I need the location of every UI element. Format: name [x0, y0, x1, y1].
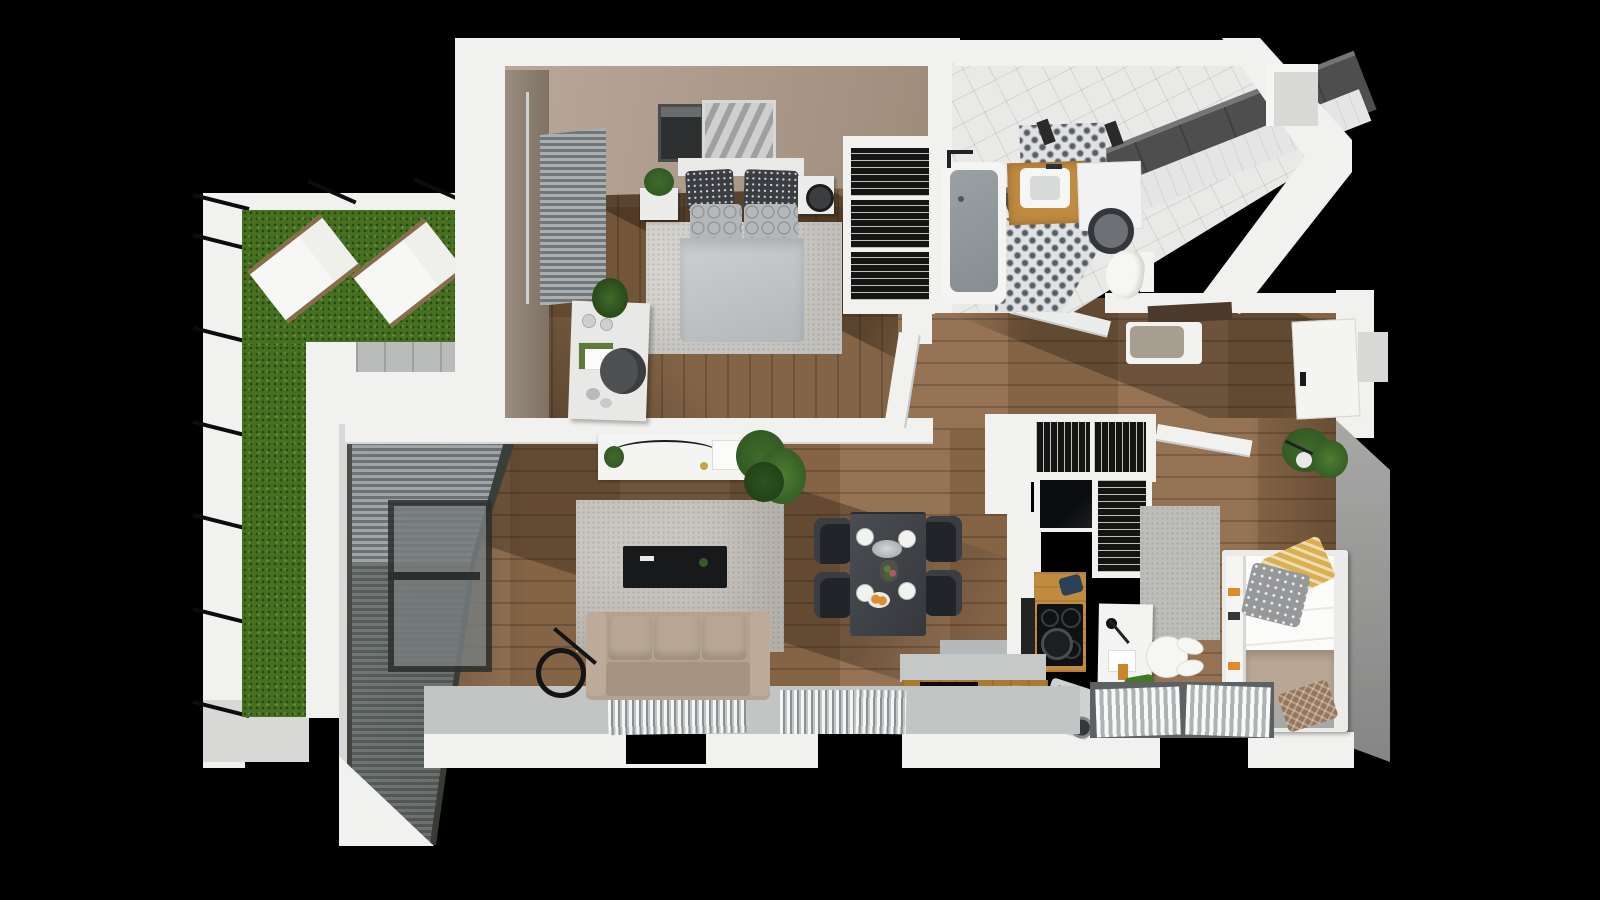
sofa-seat	[606, 662, 750, 696]
terrace-wall-corner	[306, 372, 470, 422]
bedroom-floor-plant	[592, 278, 628, 318]
bed-duvet	[680, 238, 804, 342]
washer-door	[1088, 208, 1134, 254]
desk-chair	[600, 348, 646, 394]
desk-pebble	[586, 388, 600, 400]
shower-fixture-icon	[947, 150, 951, 168]
picture-frame	[658, 104, 704, 162]
kitchen-worktop-gray	[900, 654, 1046, 682]
coat-closet-hangers	[1094, 422, 1146, 472]
coat-closet-hangers	[1036, 422, 1090, 472]
hall-floor	[898, 298, 1343, 430]
closet-left-body	[985, 414, 1031, 514]
kids-window-blinds	[1185, 685, 1271, 738]
window-mullion	[388, 572, 480, 580]
sofa-armrest	[586, 612, 606, 696]
floor-plan-stage	[0, 0, 1600, 900]
entrance-outside-step	[1358, 332, 1388, 382]
book	[1228, 612, 1240, 620]
console-gold-dot	[700, 462, 708, 470]
bedroom-left-outer-wall	[455, 60, 509, 428]
sofa	[586, 612, 770, 700]
burner-icon	[1061, 608, 1081, 628]
terrace-deck-left	[203, 193, 245, 768]
book	[1228, 662, 1240, 670]
flower-vase	[880, 560, 898, 582]
orange-fruit-plate	[868, 592, 890, 608]
console-mini-plant	[604, 446, 624, 468]
tv-decor-plant	[699, 558, 708, 567]
plate	[856, 528, 874, 546]
floor-lamp	[536, 648, 586, 698]
sofa-armrest	[750, 612, 770, 696]
dining-chair	[814, 572, 852, 618]
window-gap	[1160, 738, 1248, 768]
terrace-pavers	[356, 342, 468, 374]
bedroom-window-blinds	[540, 128, 606, 306]
desk-pebble	[600, 398, 612, 408]
floor-shadow	[949, 298, 1343, 430]
window-pane	[388, 500, 492, 672]
entrance-door	[1291, 318, 1360, 419]
radiator-grille	[856, 690, 907, 735]
window-gap	[818, 732, 902, 768]
curtain-rod	[526, 92, 529, 304]
bathtub-inner	[950, 170, 998, 292]
sofa-cushion	[608, 616, 652, 660]
kids-plant	[1312, 440, 1348, 478]
dining-chair	[924, 516, 962, 562]
sofa-cushion	[702, 616, 746, 660]
tv-console	[623, 546, 727, 588]
sink-basin	[1030, 176, 1060, 200]
bathtub-drain	[958, 196, 964, 202]
plate	[898, 582, 916, 600]
serving-tray	[872, 540, 902, 558]
wall-nook	[1266, 64, 1318, 126]
book	[1228, 588, 1240, 596]
desk-cup	[582, 314, 596, 328]
dining-chair	[814, 518, 852, 564]
wardrobe-hangers	[851, 200, 929, 248]
burner-icon	[1041, 609, 1059, 627]
wardrobe-hangers	[851, 252, 929, 300]
dining-chair	[924, 570, 962, 616]
large-plant	[744, 462, 784, 502]
radiator-grille	[780, 690, 854, 734]
window-gap	[626, 732, 706, 764]
bedroom-top-wall	[455, 38, 960, 70]
bathroom-top-wall	[955, 40, 1255, 66]
picture-frame	[702, 100, 776, 164]
entrance-door-handle	[1300, 372, 1306, 386]
black-glass-cabinet	[1040, 480, 1092, 528]
desk-cup	[600, 318, 613, 331]
kids-window-blinds	[1095, 687, 1181, 738]
remote	[640, 556, 654, 561]
sofa-cushion	[654, 616, 700, 660]
sink-faucet-icon	[1046, 164, 1062, 169]
terrace-lawn-column	[242, 345, 308, 717]
nightstand-plant	[644, 168, 674, 196]
pantry-column-hangers	[1098, 480, 1146, 572]
table-lamp	[806, 184, 834, 212]
bench-cushion	[1130, 326, 1184, 358]
wardrobe-hangers	[851, 148, 929, 196]
